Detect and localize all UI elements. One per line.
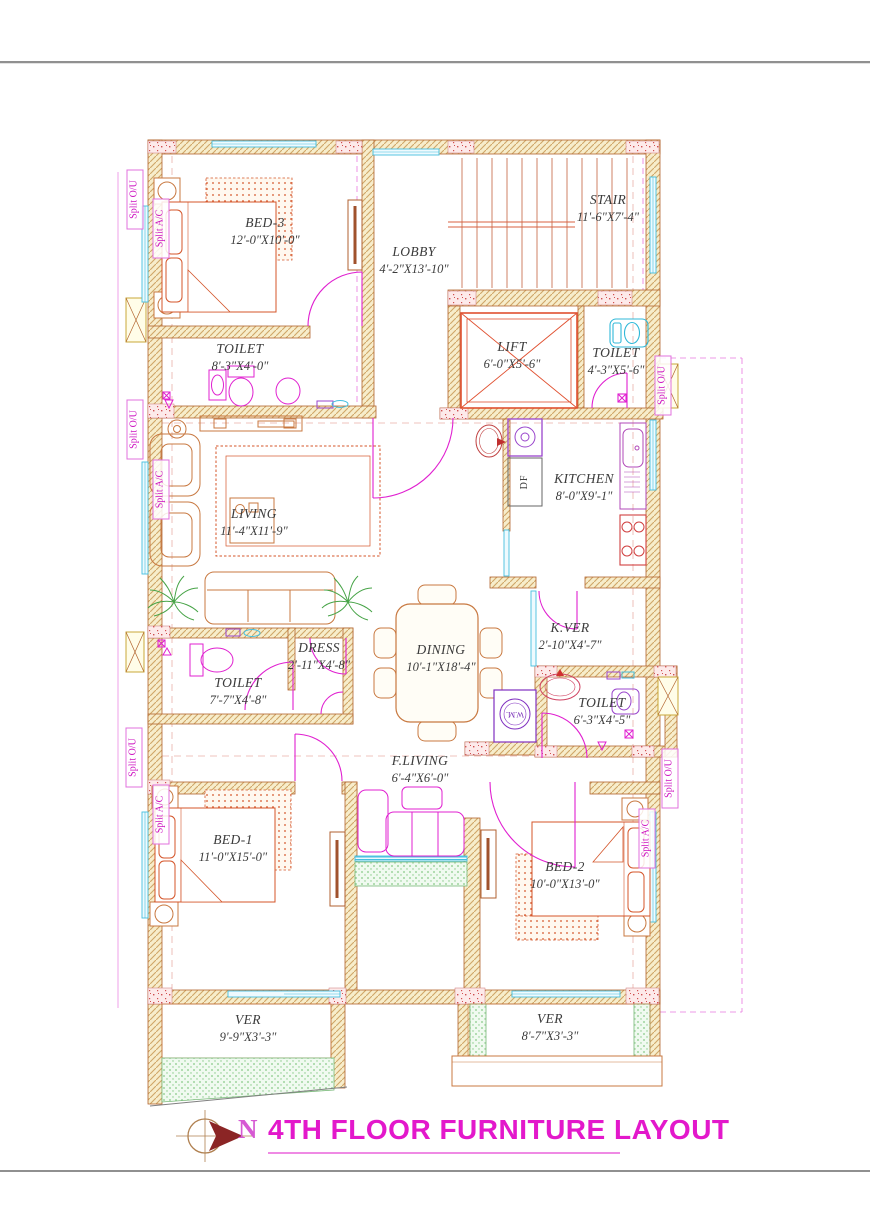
room-dims: 11'-0"X15'-0" (158, 849, 308, 865)
room-name: VER (173, 1011, 323, 1029)
room-name: STAIR (533, 191, 683, 209)
title-underline (268, 1152, 620, 1154)
split-ac-label-3: Split A/C (153, 785, 170, 845)
room-name: BED-1 (158, 831, 308, 849)
room-label-bed1: BED-1 11'-0"X15'-0" (158, 831, 308, 865)
split-ou-label-3: Split O/U (126, 728, 143, 788)
split-ou-label-5: Split O/U (662, 749, 679, 809)
split-ac-label-1: Split A/C (153, 199, 170, 259)
drawing-title: 4TH FLOOR FURNITURE LAYOUT (268, 1114, 730, 1146)
room-dims: 2'-10"X4'-7" (495, 637, 645, 653)
room-label-living: LIVING 11'-4"X11'-9" (179, 505, 329, 539)
bed3-furniture (154, 178, 362, 318)
room-label-bed3: BED-3 12'-0"X10'-0" (190, 214, 340, 248)
room-name: LOBBY (339, 243, 489, 261)
room-name: VER (475, 1010, 625, 1028)
room-dims: 8'-7"X3'-3" (475, 1028, 625, 1044)
room-name: TOILET (527, 694, 677, 712)
room-name: K.VER (495, 619, 645, 637)
room-dims: 8'-3"X4'-0" (165, 358, 315, 374)
room-dims: 10'-0"X13'-0" (490, 876, 640, 892)
room-label-ver-right: VER 8'-7"X3'-3" (475, 1010, 625, 1044)
room-dims: 11'-4"X11'-9" (179, 523, 329, 539)
floor-plan-page: { "title": "4TH FLOOR FURNITURE LAYOUT",… (0, 0, 870, 1230)
split-ou-label-4: Split O/U (655, 356, 672, 416)
split-ou-label-1: Split O/U (127, 170, 144, 230)
room-dims: 2'-11"X4'-8" (244, 657, 394, 673)
room-label-stair: STAIR 11'-6"X7'-4" (533, 191, 683, 225)
room-name: LIVING (179, 505, 329, 523)
split-ac-label-2: Split A/C (153, 460, 170, 520)
room-label-fliving: F.LIVING 6'-4"X6'-0" (345, 752, 495, 786)
room-name: TOILET (165, 340, 315, 358)
room-label-ver-left: VER 9'-9"X3'-3" (173, 1011, 323, 1045)
room-label-lobby: LOBBY 4'-2"X13'-10" (339, 243, 489, 277)
room-dims: 6'-3"X4'-5" (527, 712, 677, 728)
room-label-dress: DRESS 2'-11"X4'-8" (244, 639, 394, 673)
family-living-furniture (355, 787, 467, 886)
room-dims: 7'-7"X4'-8" (163, 692, 313, 708)
room-name: BED-2 (490, 858, 640, 876)
room-label-toilet-br: TOILET 6'-3"X4'-5" (527, 694, 677, 728)
room-label-toilet-mid: TOILET 7'-7"X4'-8" (163, 674, 313, 708)
north-letter: N (238, 1114, 258, 1145)
room-dims: 12'-0"X10'-0" (190, 232, 340, 248)
washing-machine-label: W.M. (500, 708, 530, 720)
room-dims: 6'-4"X6'-0" (345, 770, 495, 786)
room-name: BED-3 (190, 214, 340, 232)
room-dims: 11'-6"X7'-4" (533, 209, 683, 225)
split-ou-label-2: Split O/U (127, 400, 144, 460)
room-name: DRESS (244, 639, 394, 657)
room-dims: 4'-2"X13'-10" (339, 261, 489, 277)
room-name: TOILET (163, 674, 313, 692)
room-label-toilet-bed3: TOILET 8'-3"X4'-0" (165, 340, 315, 374)
room-dims: 9'-9"X3'-3" (173, 1029, 323, 1045)
fridge-df-label: DF (518, 467, 532, 497)
room-name: F.LIVING (345, 752, 495, 770)
room-label-kver: K.VER 2'-10"X4'-7" (495, 619, 645, 653)
split-ac-label-4: Split A/C (639, 809, 656, 869)
room-label-bed2: BED-2 10'-0"X13'-0" (490, 858, 640, 892)
